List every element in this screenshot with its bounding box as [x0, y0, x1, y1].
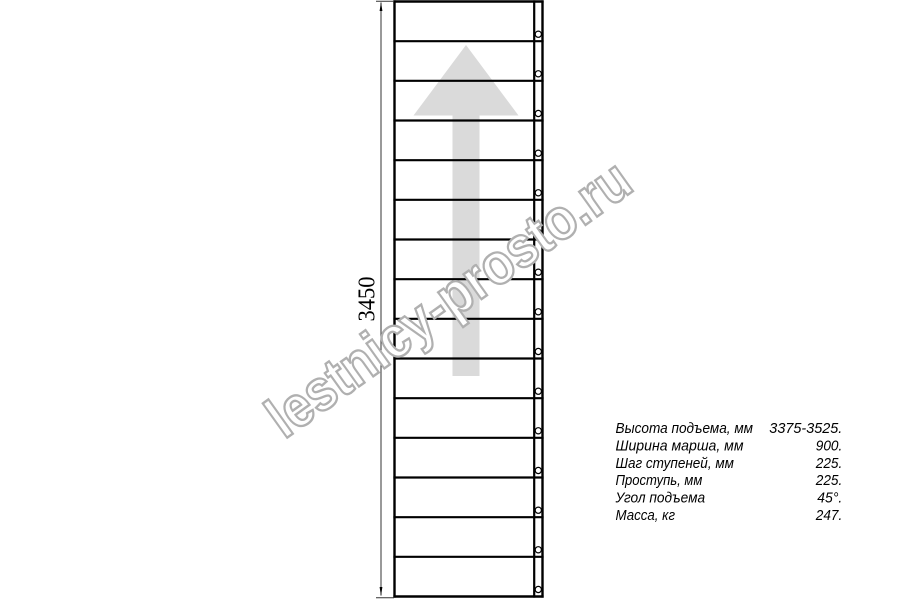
svg-text:3375-3525.: 3375-3525. — [769, 420, 842, 437]
svg-text:Шаг ступеней, мм: Шаг ступеней, мм — [616, 455, 734, 472]
svg-text:Проступь, мм: Проступь, мм — [616, 472, 703, 489]
svg-text:Высота подъема, мм: Высота подъема, мм — [616, 420, 754, 437]
svg-text:900.: 900. — [816, 437, 843, 454]
svg-text:Угол подъема: Угол подъема — [615, 490, 706, 507]
svg-text:45°.: 45°. — [817, 490, 842, 507]
svg-text:Ширина марша, мм: Ширина марша, мм — [616, 437, 744, 454]
svg-text:247.: 247. — [815, 507, 842, 524]
svg-text:Масса, кг: Масса, кг — [616, 507, 676, 524]
svg-text:225.: 225. — [815, 455, 842, 472]
svg-text:225.: 225. — [815, 472, 842, 489]
